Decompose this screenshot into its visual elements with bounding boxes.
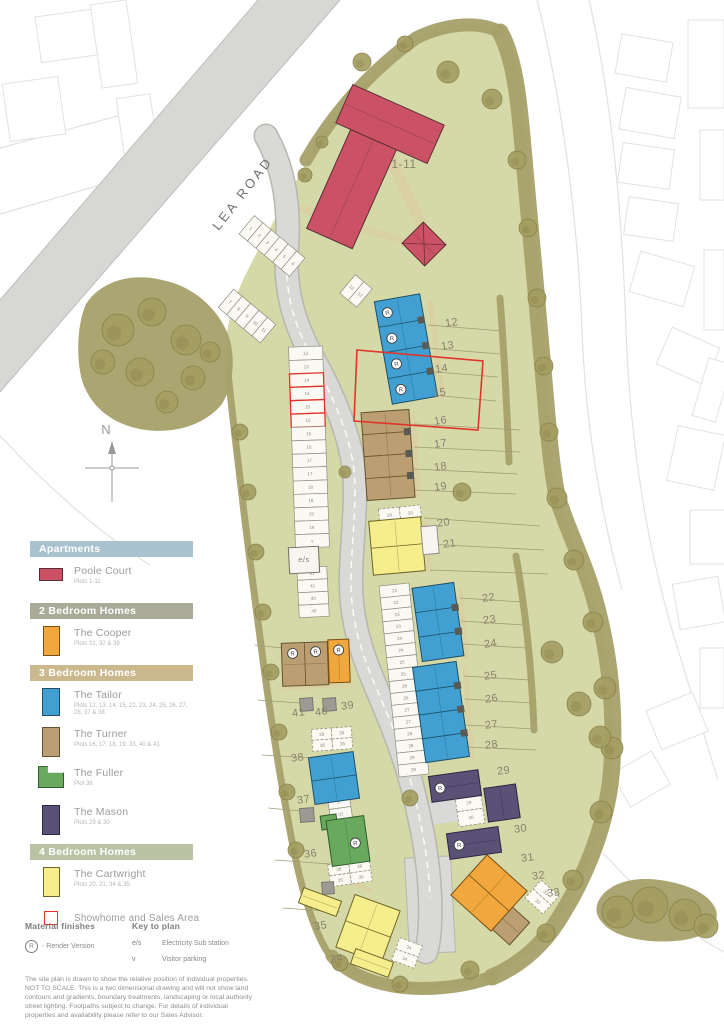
tree-shade xyxy=(273,730,280,737)
tree-shade xyxy=(142,309,155,322)
tree-shade xyxy=(543,430,551,438)
parking-bay-number: 18 xyxy=(308,485,314,490)
poole-court-swatch xyxy=(39,568,63,581)
tree-shade xyxy=(522,226,530,234)
porch xyxy=(460,729,468,737)
tree-shade xyxy=(257,610,264,617)
plot-number-label: 35 xyxy=(313,919,328,933)
existing-house-outline xyxy=(90,0,137,88)
tree-shade xyxy=(456,490,464,498)
tree-shade xyxy=(130,369,143,382)
existing-house-outline xyxy=(2,76,66,141)
tree-shade xyxy=(404,796,411,803)
existing-house-outline xyxy=(700,648,724,708)
house-type-plots: Plots 20, 21, 34 & 35 xyxy=(74,882,146,890)
parking-strip: 41414040 xyxy=(297,566,330,618)
tree-shade xyxy=(159,399,169,409)
plot-number-label: 22 xyxy=(481,591,496,605)
existing-house-outline xyxy=(672,576,724,629)
plot-number-label: 14 xyxy=(434,362,449,376)
allocated-bay-number: 38 xyxy=(340,741,346,746)
key-label: Visitor parking xyxy=(162,956,206,963)
tree-shade xyxy=(234,430,241,437)
parking-bay-number: 41 xyxy=(310,583,316,588)
porch xyxy=(422,341,430,349)
porch xyxy=(457,705,465,713)
cooper-39: R xyxy=(328,639,350,683)
key-abbr: v xyxy=(132,956,162,963)
plan-notes: Material finishes R - Render Version Key… xyxy=(25,921,265,1021)
plot-number-label: 24 xyxy=(483,637,498,651)
apartments-plots-label: 1-11 xyxy=(391,157,416,171)
legend-item-cooper: The Cooper Plots 31, 32 & 39 xyxy=(36,626,200,656)
compass-north-label: N xyxy=(101,422,110,437)
plot-number-label: 20 xyxy=(436,516,451,530)
plot-number-label: 41 xyxy=(291,706,306,720)
tree-shade xyxy=(242,490,249,497)
tree-shade xyxy=(698,923,709,934)
plot-number-label: 13 xyxy=(440,339,455,353)
legend: Apartments Poole Court Plots 1-11 2 Bedr… xyxy=(30,541,200,925)
render-version-label: - Render Version xyxy=(42,943,95,950)
tree-shade xyxy=(290,848,297,855)
legend-item-cartwright: The Cartwright Plots 20, 21, 34 & 35 xyxy=(36,867,200,897)
tree-shade xyxy=(538,364,546,372)
existing-road-line xyxy=(582,330,622,590)
plot-number-label: 30 xyxy=(513,822,528,836)
legend-header-3bed: 3 Bedroom Homes xyxy=(30,665,193,681)
tree-shade xyxy=(586,620,595,629)
material-finishes-title: Material finishes xyxy=(25,921,132,931)
plot-number-label: 18 xyxy=(433,460,448,474)
house-type-plots: Plots 16, 17, 18, 19, 33, 40 & 41 xyxy=(74,742,160,750)
compass-hub xyxy=(110,466,114,470)
tailor-swatch xyxy=(42,688,60,716)
render-version-key: R - Render Version xyxy=(25,940,132,953)
cooper-swatch xyxy=(43,626,60,656)
tree-shade xyxy=(531,296,539,304)
existing-house-outline xyxy=(667,426,724,491)
plot-number-label: 28 xyxy=(484,738,499,752)
existing-house-outline xyxy=(646,692,708,750)
plot-number-label: 37 xyxy=(296,793,311,807)
house-type-plots: Plots 31, 32 & 39 xyxy=(74,641,131,649)
garage-20-21 xyxy=(421,525,439,554)
plot-number-label: 38 xyxy=(290,751,305,765)
existing-house-outline xyxy=(619,87,681,138)
shed xyxy=(322,882,335,895)
tree-shade xyxy=(356,60,364,68)
parking-bay-number: 15 xyxy=(305,418,311,423)
legend-item-turner: The Turner Plots 16, 17, 18, 19, 33, 40 … xyxy=(36,727,200,757)
turner-swatch xyxy=(42,727,60,757)
tree-shade xyxy=(440,69,450,79)
tree-shade xyxy=(592,734,602,744)
tree-shade xyxy=(107,326,121,340)
legend-item-mason: The Mason Plots 29 & 30 xyxy=(36,805,200,835)
tree-shade xyxy=(203,350,212,359)
fuller-swatch xyxy=(38,766,64,788)
parking-bay-number: 40 xyxy=(311,608,317,613)
substation-label: e/s xyxy=(298,555,310,564)
house-type-name: Poole Court xyxy=(74,565,132,577)
plot-number-label: 21 xyxy=(442,537,457,551)
existing-house-outline xyxy=(624,197,679,242)
plot-number-label: 32 xyxy=(531,869,546,883)
tree-shade xyxy=(607,908,621,922)
key-item-visitor-parking: v Visitor parking xyxy=(132,956,262,963)
allocated-parking: 39393838 xyxy=(311,727,352,752)
house-type-name: The Fuller xyxy=(74,767,123,779)
house-type-plots: Plots 1-11 xyxy=(74,579,132,587)
fuller-36: R xyxy=(326,816,370,867)
plot-number-label: 17 xyxy=(433,437,448,451)
key-label: Electricity Sub station xyxy=(162,940,229,947)
legend-header-2bed: 2 Bedroom Homes xyxy=(30,603,193,619)
allocated-bay-number: 38 xyxy=(320,743,326,748)
tree-shade xyxy=(176,336,190,350)
plot-number-label: 29 xyxy=(496,764,511,778)
legend-item-tailor: The Tailor Plots 12, 13, 14, 15, 22, 23,… xyxy=(36,688,200,718)
tree-shade xyxy=(464,968,472,976)
house-type-name: The Cartwright xyxy=(74,868,146,880)
existing-house-outline xyxy=(688,20,724,108)
tree-shade xyxy=(540,931,548,939)
tree-shade xyxy=(566,878,575,887)
parking-bay-number: 14 xyxy=(304,378,310,383)
legend-header-4bed: 4 Bedroom Homes xyxy=(30,844,193,860)
cartwright-20-21 xyxy=(369,517,426,575)
render-badge-icon: R xyxy=(25,940,38,953)
house-type-name: The Tailor xyxy=(74,689,194,701)
tree-shade xyxy=(485,97,494,106)
parking-bay-number: 13 xyxy=(303,351,309,356)
parking-bay-number: 15 xyxy=(305,404,311,409)
garage-20-21-footprint xyxy=(421,525,439,554)
porch xyxy=(455,627,463,635)
turner-40-41: RR xyxy=(281,642,328,687)
tree-shade xyxy=(571,701,582,712)
parking-bay-number: 16 xyxy=(306,444,312,449)
porch xyxy=(426,367,434,375)
parking-bay-number: 40 xyxy=(311,596,317,601)
tree-shade xyxy=(674,911,688,925)
plot-number-label: 33 xyxy=(546,886,561,900)
plot-number-label: 39 xyxy=(340,699,355,713)
tree-shade xyxy=(95,359,106,370)
house-type-name: The Mason xyxy=(74,806,128,818)
porch xyxy=(454,681,462,689)
existing-house-outline xyxy=(700,130,724,200)
tree-shade xyxy=(300,173,306,179)
key-to-plan-title: Key to plan xyxy=(132,921,262,931)
parking-bay-number: 18 xyxy=(308,498,314,503)
existing-house-outline xyxy=(629,251,694,307)
mason-swatch xyxy=(42,805,60,835)
tree-shade xyxy=(341,471,346,476)
house-type-name: The Cooper xyxy=(74,627,131,639)
tree-shade xyxy=(250,550,257,557)
house-type-plots: Plots 12, 13, 14, 15, 22, 23, 24, 25, 26… xyxy=(74,703,194,719)
tree-shade xyxy=(593,809,603,819)
plot-number-label: 25 xyxy=(483,669,498,683)
parking-bay-number: 17 xyxy=(307,471,313,476)
tree-shade xyxy=(550,496,559,505)
plot-number-label: 36 xyxy=(303,847,318,861)
parking-bay-number: 19 xyxy=(309,511,315,516)
plot-number-label: 19 xyxy=(433,480,448,494)
parking-bay-number: 19 xyxy=(309,525,315,530)
tree-shade xyxy=(544,649,554,659)
site-plan-page: 1234567891011121213131414151516161717181… xyxy=(0,0,724,1024)
legend-item-fuller: The Fuller Plot 36 xyxy=(36,766,200,796)
tree-shade xyxy=(394,982,401,989)
existing-house-outline xyxy=(617,143,674,190)
parking-bay-number: 17 xyxy=(307,458,313,463)
tree-shade xyxy=(399,42,406,49)
plot-number-label: 12 xyxy=(444,316,459,330)
plot-number-label: 16 xyxy=(433,414,448,428)
legend-item-poole-court: Poole Court Plots 1-11 xyxy=(36,564,200,594)
plot-number-label: 26 xyxy=(484,692,499,706)
compass-arrowhead xyxy=(108,441,116,454)
tree-shade xyxy=(281,790,288,797)
lea-road-label: LEA ROAD xyxy=(209,154,276,233)
parking-bay-number: 16 xyxy=(306,431,312,436)
porch xyxy=(405,450,412,457)
plot-number-label: 31 xyxy=(520,851,535,865)
key-abbr: e/s xyxy=(132,940,162,947)
house-type-name: The Turner xyxy=(74,728,160,740)
disclaimer-text: The site plan is drawn to show the relat… xyxy=(25,976,253,1021)
plot-number-label: 34 xyxy=(329,952,344,966)
tree-shade xyxy=(597,685,607,695)
existing-house-outline xyxy=(690,510,724,564)
porch xyxy=(407,472,414,479)
key-item-substation: e/s Electricity Sub station xyxy=(132,940,262,947)
porch xyxy=(404,428,411,435)
tree-shade xyxy=(637,901,653,917)
tree-shade xyxy=(185,375,196,386)
tree-shade xyxy=(511,158,519,166)
existing-house-outline xyxy=(615,34,673,82)
tailor-37-38 xyxy=(308,752,359,805)
porch xyxy=(451,604,459,612)
parking-bay-number: 14 xyxy=(305,391,311,396)
plot-number-label: 40 xyxy=(314,705,329,719)
cartwright-swatch xyxy=(43,867,60,897)
mason-29-annex xyxy=(484,784,520,822)
house-type-plots: Plot 36 xyxy=(74,781,123,789)
tree-shade xyxy=(318,141,323,146)
north-compass: N xyxy=(85,422,139,502)
shed xyxy=(300,808,315,823)
allocated-bay-number: 39 xyxy=(339,730,345,735)
allocated-bay-number: 39 xyxy=(319,732,325,737)
house-type-plots: Plots 29 & 30 xyxy=(74,820,128,828)
tree-shade xyxy=(265,670,272,677)
tree-shade xyxy=(567,558,576,567)
plot-number-label: 15 xyxy=(432,386,447,400)
existing-house-outline xyxy=(704,250,724,330)
parking-bay-number: 13 xyxy=(304,364,310,369)
plot-number-label: 27 xyxy=(484,718,499,732)
porch xyxy=(417,316,425,324)
plot-number-label: 23 xyxy=(482,613,497,627)
legend-header-apartments: Apartments xyxy=(30,541,193,557)
parking-strip: 1313141415151616171718181919v xyxy=(289,346,330,548)
